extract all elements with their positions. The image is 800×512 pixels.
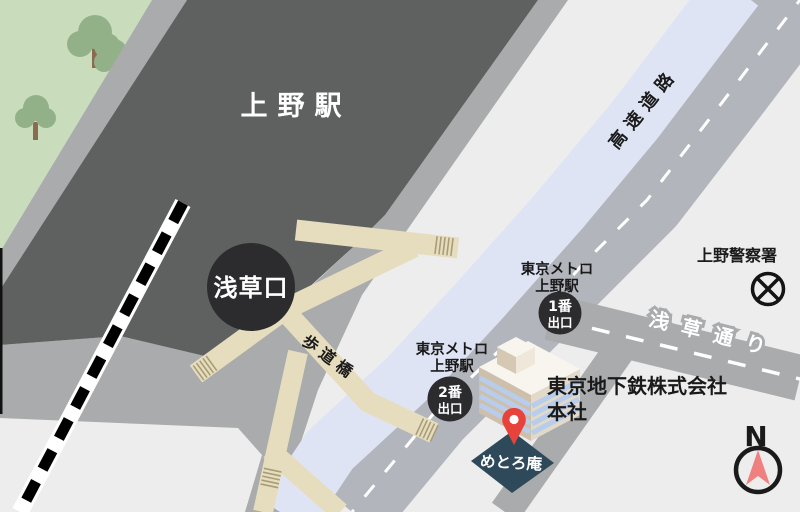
hq-label-line2: 本社	[547, 400, 587, 424]
exit1-badge-line1: 1番	[548, 298, 573, 315]
destination-label: めとろ庵	[480, 451, 543, 473]
map-edge-line	[0, 248, 3, 414]
metro-exit2-station-line1: 東京メトロ	[416, 340, 489, 358]
hq-label-line1: 東京地下鉄株式会社	[547, 374, 727, 398]
metro-exit1-station-line1: 東京メトロ	[521, 260, 594, 278]
exit2-badge-line2: 出口	[437, 401, 462, 416]
exit2-badge-line1: 2番	[438, 384, 463, 401]
access-map: 上野駅 浅草口 高速道路 歩道橋 浅草通り 上野警察署 東京メトロ 上野駅 1番…	[0, 0, 800, 512]
map-canvas: 上野駅 浅草口 高速道路 歩道橋 浅草通り 上野警察署 東京メトロ 上野駅 1番…	[0, 0, 800, 512]
asakusa-exit-badge: 浅草口	[207, 243, 295, 331]
ueno-station-label: 上野駅	[241, 91, 352, 122]
exit1-badge-line2: 出口	[547, 315, 572, 330]
asakusa-exit-label: 浅草口	[214, 274, 289, 302]
tree-trunk	[33, 122, 38, 140]
police-station-label: 上野警察署	[697, 246, 777, 265]
metro-exit2-station-line2: 上野駅	[430, 358, 474, 375]
